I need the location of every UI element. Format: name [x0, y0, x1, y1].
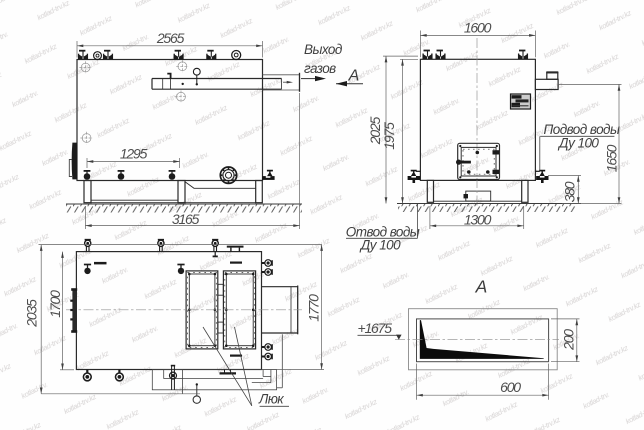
- svg-text:Ду 100: Ду 100: [557, 136, 599, 151]
- svg-text:2565: 2565: [156, 30, 185, 46]
- svg-text:2035: 2035: [24, 299, 40, 328]
- svg-text:газов: газов: [304, 61, 336, 76]
- svg-text:1975: 1975: [381, 122, 397, 150]
- svg-text:1650: 1650: [604, 144, 620, 172]
- svg-text:Люк: Люк: [258, 392, 284, 407]
- svg-text:1300: 1300: [464, 211, 492, 227]
- svg-text:А: А: [475, 277, 488, 297]
- svg-text:600: 600: [500, 379, 521, 395]
- svg-text:1700: 1700: [47, 290, 63, 318]
- svg-text:Ду 100: Ду 100: [359, 238, 401, 253]
- svg-text:А: А: [348, 68, 360, 85]
- svg-text:1295: 1295: [120, 146, 148, 162]
- svg-text:380: 380: [562, 181, 578, 202]
- svg-text:1770: 1770: [306, 294, 322, 322]
- svg-text:+1675: +1675: [358, 320, 393, 336]
- svg-text:3165: 3165: [172, 211, 200, 227]
- svg-text:200: 200: [561, 329, 577, 351]
- svg-text:1600: 1600: [464, 20, 492, 36]
- svg-text:Выход: Выход: [304, 42, 343, 57]
